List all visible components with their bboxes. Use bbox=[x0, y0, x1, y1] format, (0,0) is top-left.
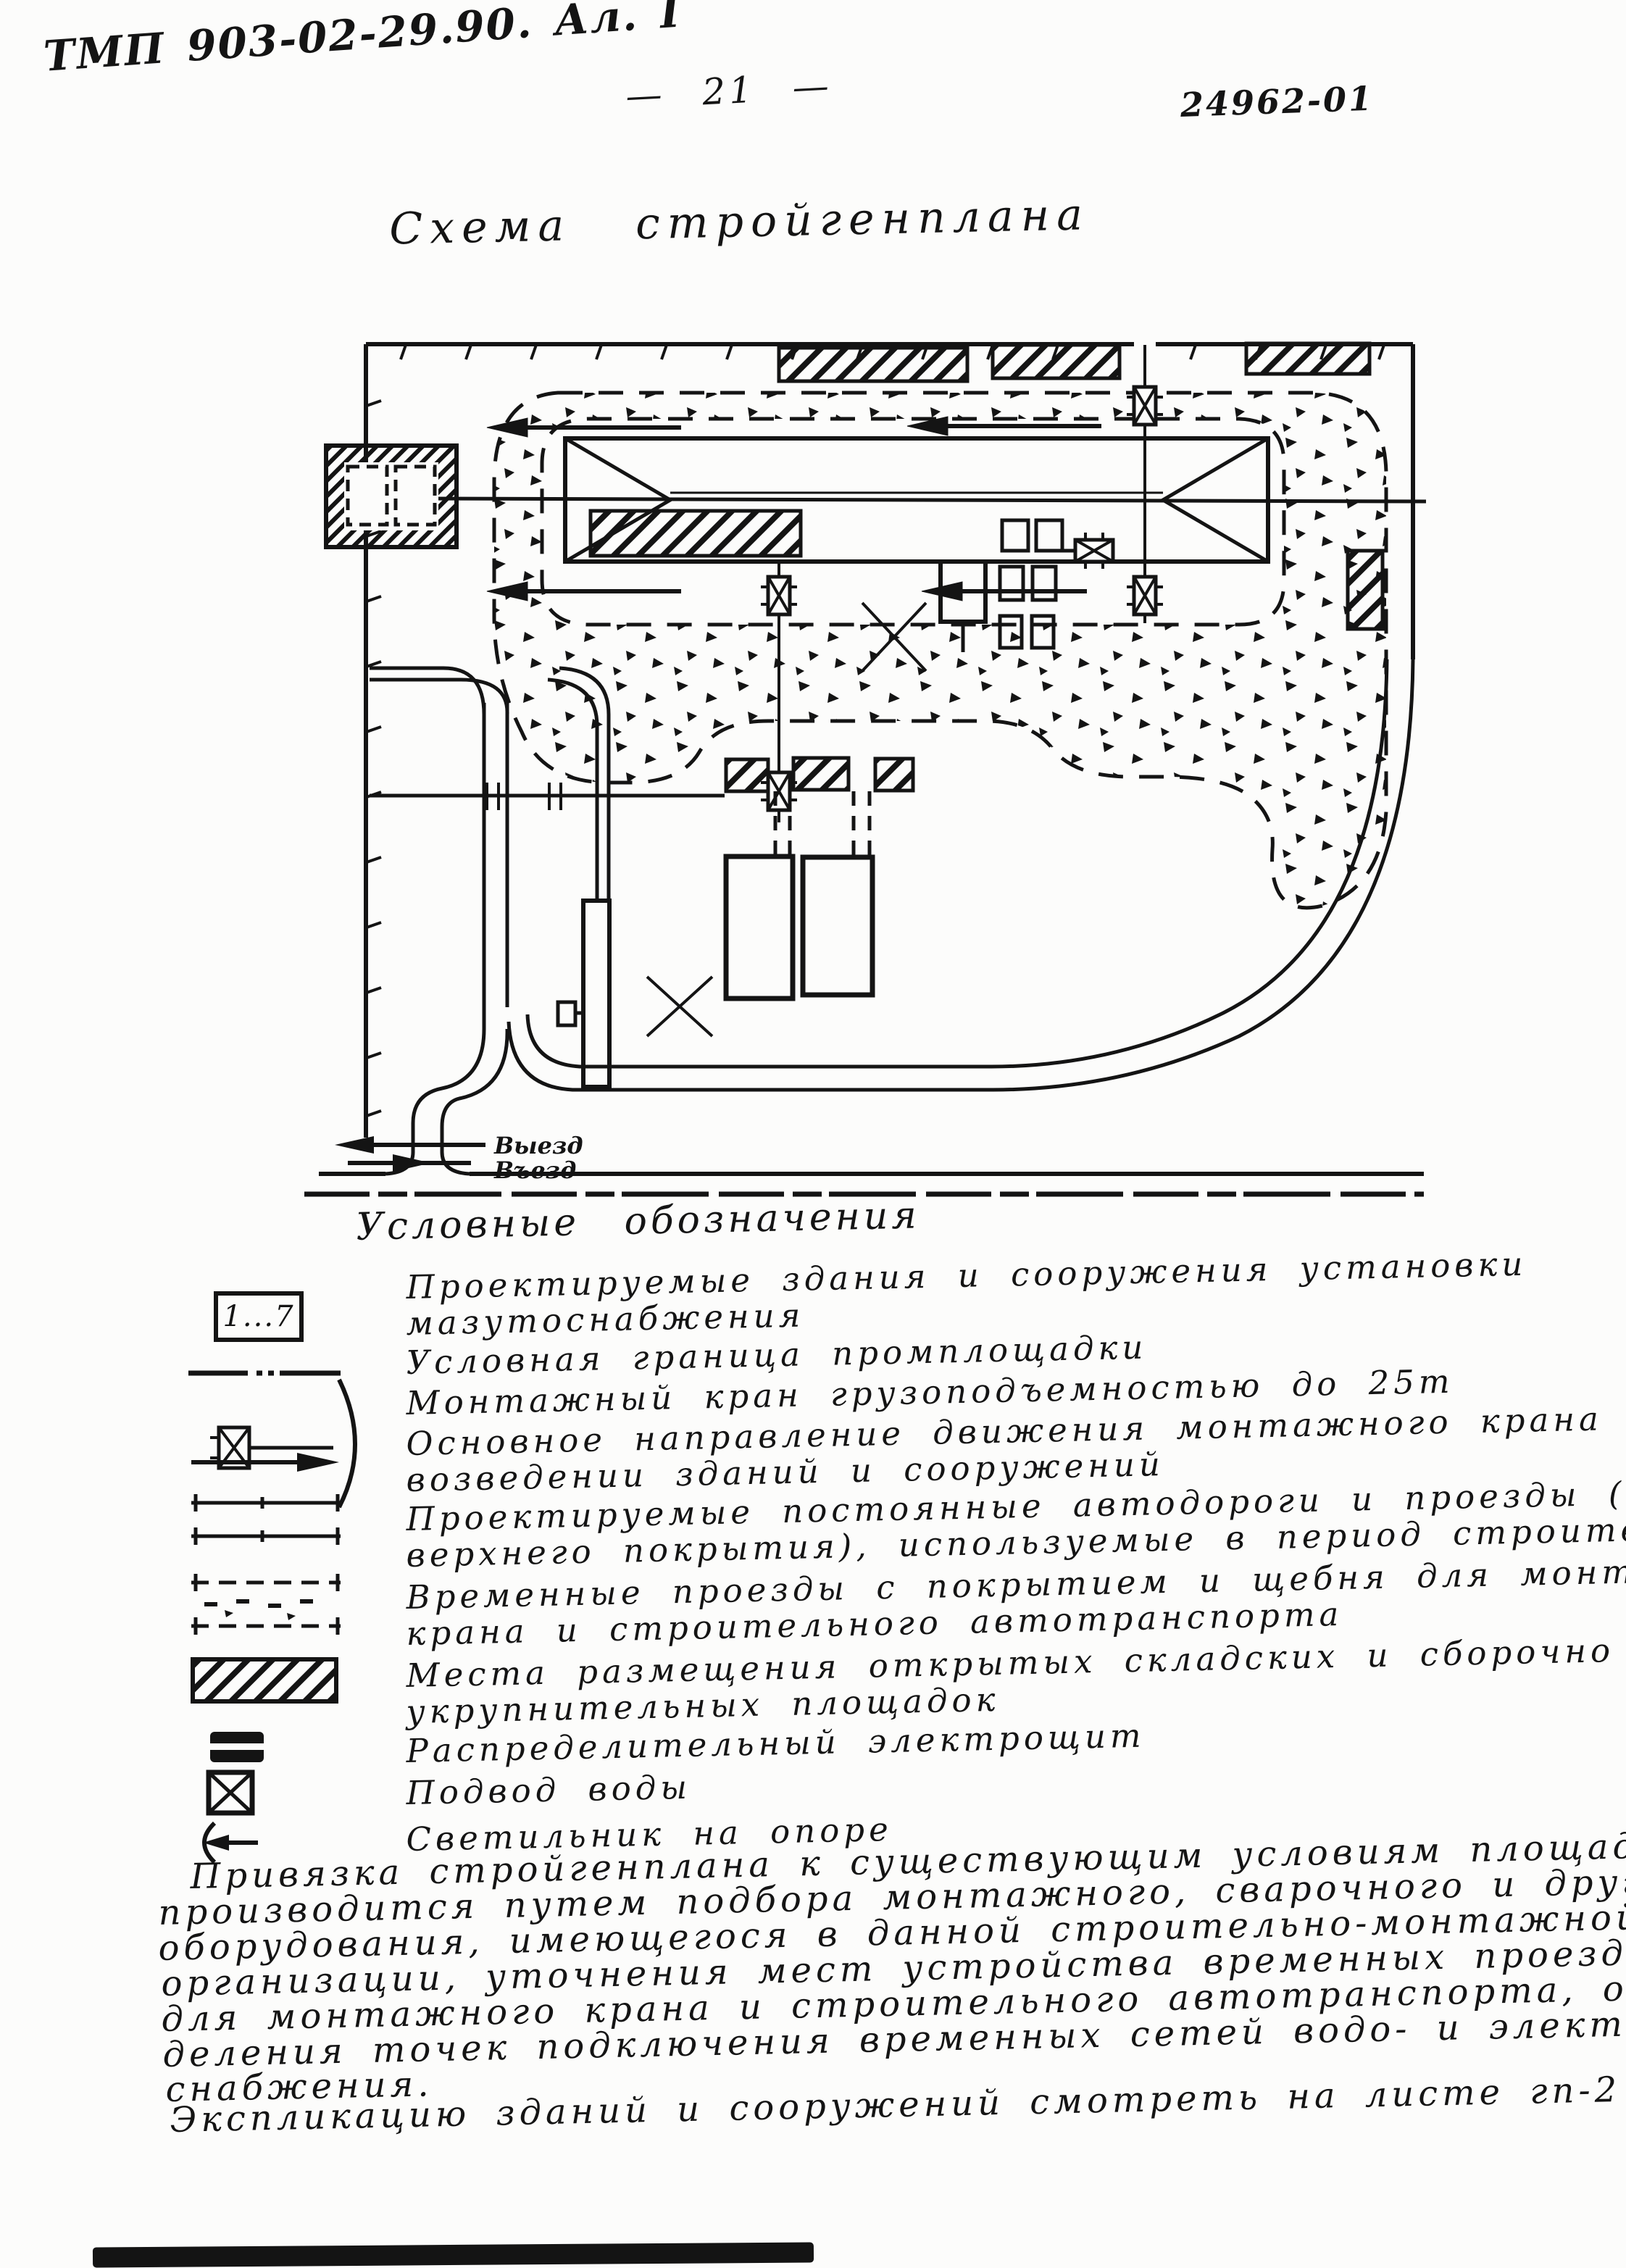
service-line bbox=[370, 783, 725, 810]
scanned-document-page: ТМП 903-02-29.90. Ал. I — 21 — 24962-01 … bbox=[0, 0, 1626, 2268]
long-building bbox=[406, 438, 1426, 562]
legend-item-text: Проектируемые здания и сооружения устано… bbox=[406, 1245, 1527, 1306]
bottom-center-block bbox=[726, 758, 913, 998]
left-compound-building bbox=[326, 446, 456, 547]
numbered-buildings-box: 1...7 bbox=[214, 1291, 304, 1342]
doc-number: 24962-01 bbox=[1180, 79, 1375, 125]
exit-entry: Выезд Въезд bbox=[335, 1132, 583, 1184]
doc-code: ТМП 903-02-29.90. Ал. I bbox=[42, 0, 683, 81]
crane-icon bbox=[1127, 387, 1163, 425]
storage-pad-right bbox=[1348, 551, 1383, 629]
legend-item-text: Подвод воды bbox=[406, 1768, 691, 1812]
entry-label: Въезд bbox=[493, 1156, 576, 1184]
distribution-board-icon bbox=[209, 1730, 267, 1765]
water-supply-icon bbox=[206, 1769, 255, 1816]
crane-icon bbox=[1127, 577, 1163, 614]
site-plan-diagram: Выезд Въезд bbox=[304, 312, 1435, 1203]
exit-label: Выезд bbox=[493, 1132, 583, 1159]
narrow-building bbox=[558, 901, 609, 1087]
temporary-road-icon bbox=[190, 1572, 343, 1636]
mounting-crane-icon bbox=[201, 1375, 383, 1512]
crane-work-zone bbox=[494, 393, 1386, 908]
scan-artifact-bar bbox=[93, 2243, 814, 2268]
crane-direction-arrow-icon bbox=[190, 1451, 342, 1474]
page-title: Схема стройгенплана bbox=[304, 188, 1175, 257]
page-number: — 21 — bbox=[625, 64, 833, 117]
open-storage-icon bbox=[190, 1656, 341, 1706]
crane-icon bbox=[761, 577, 797, 614]
storage-pads-top bbox=[779, 343, 1369, 381]
crane-icon bbox=[1075, 533, 1113, 569]
crane-direction-arrows bbox=[487, 417, 1101, 601]
permanent-road-icon bbox=[190, 1493, 343, 1546]
